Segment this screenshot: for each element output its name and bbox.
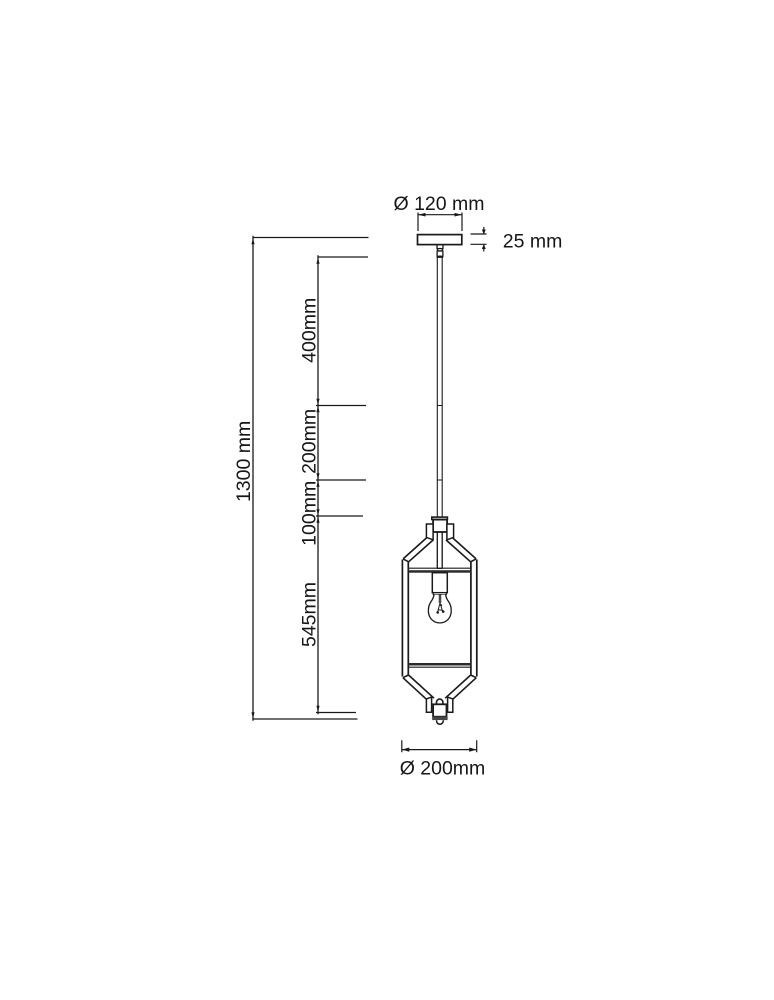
svg-text:Ø 120 mm: Ø 120 mm [393,193,484,215]
svg-text:25 mm: 25 mm [503,230,563,252]
svg-text:200mm: 200mm [299,409,321,474]
svg-text:Ø 200mm: Ø 200mm [400,758,486,780]
svg-text:545mm: 545mm [299,582,321,647]
svg-text:1300 mm: 1300 mm [233,421,255,502]
svg-text:100mm: 100mm [299,481,321,546]
svg-text:400mm: 400mm [299,298,321,363]
